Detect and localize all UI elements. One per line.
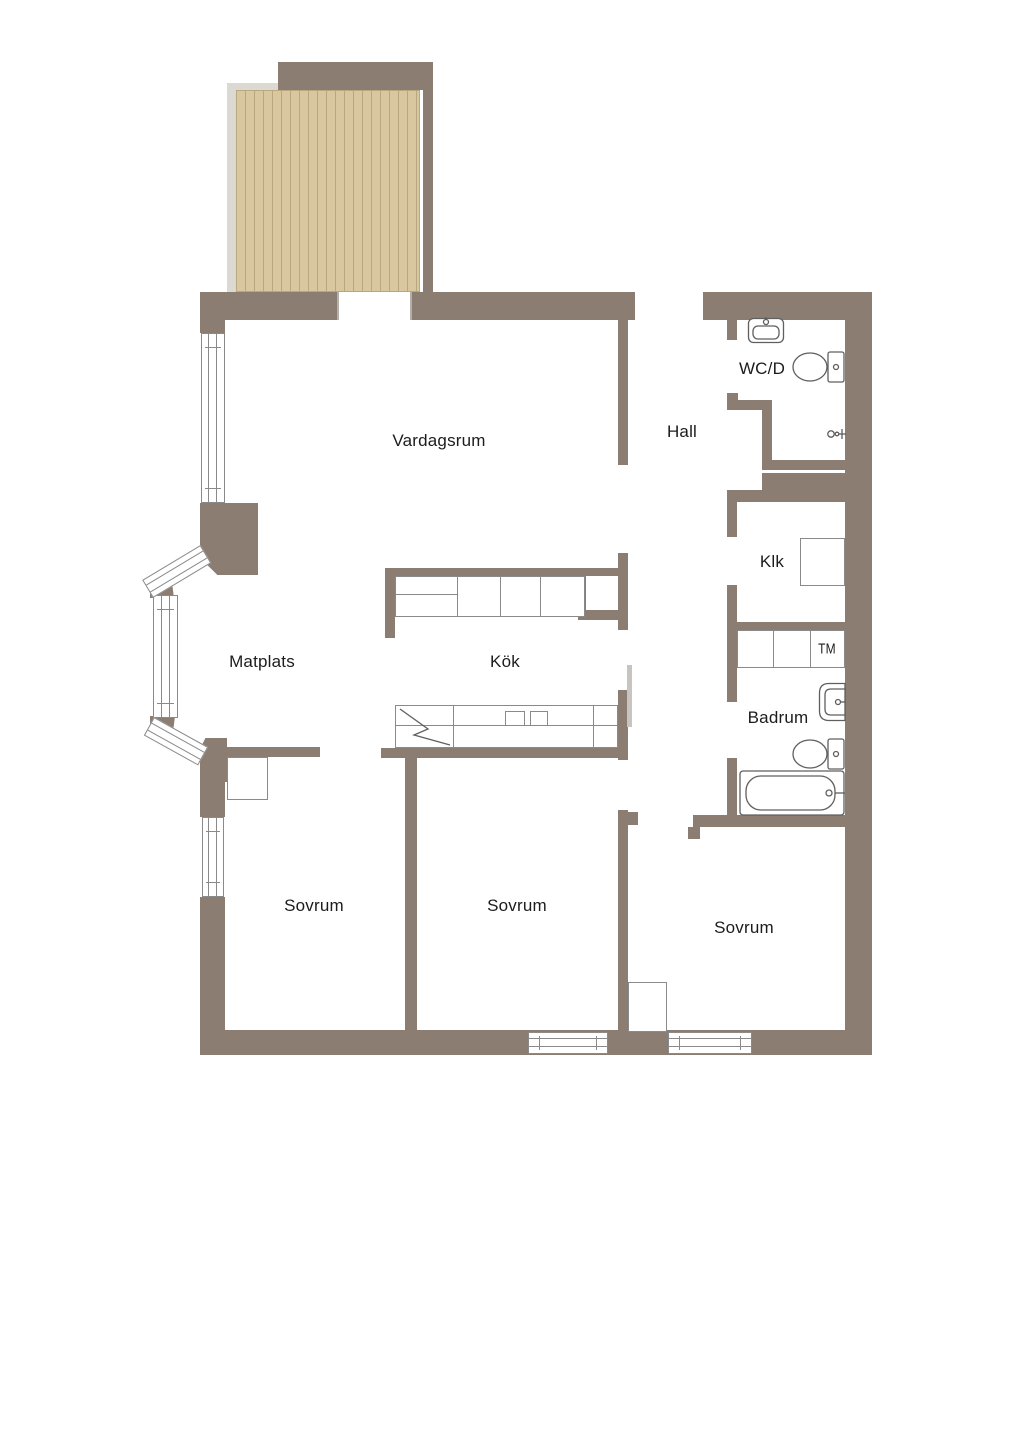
room-label-sovrum-1: Sovrum bbox=[284, 896, 344, 916]
wall-segment bbox=[693, 815, 845, 827]
wall-segment bbox=[412, 292, 635, 320]
wall-segment bbox=[688, 827, 700, 839]
room-label-wcd: WC/D bbox=[739, 359, 785, 379]
toilet-icon bbox=[791, 736, 846, 772]
wall-segment bbox=[225, 747, 320, 757]
wall-segment bbox=[200, 780, 225, 817]
wall-segment bbox=[727, 318, 737, 340]
bathtub-icon bbox=[739, 770, 845, 816]
wall-segment bbox=[628, 812, 638, 825]
counter-divider bbox=[500, 576, 501, 617]
room-label-hall: Hall bbox=[667, 422, 697, 442]
wall-segment bbox=[385, 568, 395, 638]
wall-segment bbox=[727, 490, 737, 537]
toilet-icon bbox=[791, 349, 846, 385]
wall-segment bbox=[618, 810, 628, 1032]
wall-segment bbox=[200, 292, 337, 320]
balcony-deck bbox=[236, 90, 420, 292]
floor-plan: Vardagsrum Hall WC/D Klk Matplats Kök Ba… bbox=[0, 0, 1024, 1448]
window bbox=[153, 595, 178, 718]
wardrobe bbox=[227, 757, 268, 800]
wall-segment bbox=[405, 748, 417, 1032]
counter-divider bbox=[773, 630, 774, 668]
room-label-vardagsrum: Vardagsrum bbox=[392, 431, 485, 451]
door-threshold bbox=[337, 292, 339, 320]
wall-segment bbox=[727, 585, 737, 622]
bay-window-angled bbox=[144, 717, 208, 765]
shower-mixer-icon bbox=[826, 426, 846, 442]
glass-partition bbox=[627, 665, 632, 727]
counter-divider bbox=[810, 630, 811, 668]
window bbox=[528, 1032, 608, 1054]
appliance-zigzag-icon bbox=[397, 706, 453, 748]
wall-segment bbox=[385, 568, 628, 576]
washing-machine-label: TM bbox=[818, 641, 836, 658]
wall-segment bbox=[762, 460, 845, 470]
cooktop-rect bbox=[530, 711, 548, 726]
wardrobe bbox=[628, 982, 667, 1032]
room-label-sovrum-2: Sovrum bbox=[487, 896, 547, 916]
wall-segment bbox=[423, 62, 433, 292]
wall-segment bbox=[278, 62, 433, 90]
wall-segment bbox=[762, 400, 772, 460]
wall-segment bbox=[762, 473, 845, 502]
cooktop-rect bbox=[505, 711, 525, 726]
counter-divider bbox=[395, 594, 457, 595]
deck-trim bbox=[227, 83, 236, 292]
window bbox=[668, 1032, 752, 1054]
room-label-badrum: Badrum bbox=[748, 708, 809, 728]
kitchen-counter-upper bbox=[395, 576, 585, 617]
window bbox=[202, 817, 224, 897]
counter-divider bbox=[540, 576, 541, 617]
wall-segment bbox=[727, 758, 737, 818]
room-label-klk: Klk bbox=[760, 552, 784, 572]
wall-segment bbox=[703, 292, 845, 320]
counter-divider bbox=[593, 705, 594, 748]
counter-divider bbox=[453, 705, 454, 748]
wall-segment bbox=[585, 610, 628, 620]
room-label-matplats: Matplats bbox=[229, 652, 295, 672]
wardrobe bbox=[800, 538, 845, 586]
wall-segment bbox=[727, 632, 737, 702]
sink-icon bbox=[818, 682, 846, 722]
wall-segment bbox=[381, 748, 628, 758]
wall-segment bbox=[200, 320, 225, 333]
wall-segment bbox=[845, 292, 872, 1055]
wall-segment bbox=[200, 897, 225, 1030]
room-label-kok: Kök bbox=[490, 652, 520, 672]
bay-window-angled bbox=[142, 545, 211, 598]
room-label-sovrum-3: Sovrum bbox=[714, 918, 774, 938]
sink-icon bbox=[747, 317, 785, 345]
counter-divider bbox=[457, 576, 458, 617]
window bbox=[201, 333, 225, 503]
wall-segment bbox=[618, 292, 628, 465]
